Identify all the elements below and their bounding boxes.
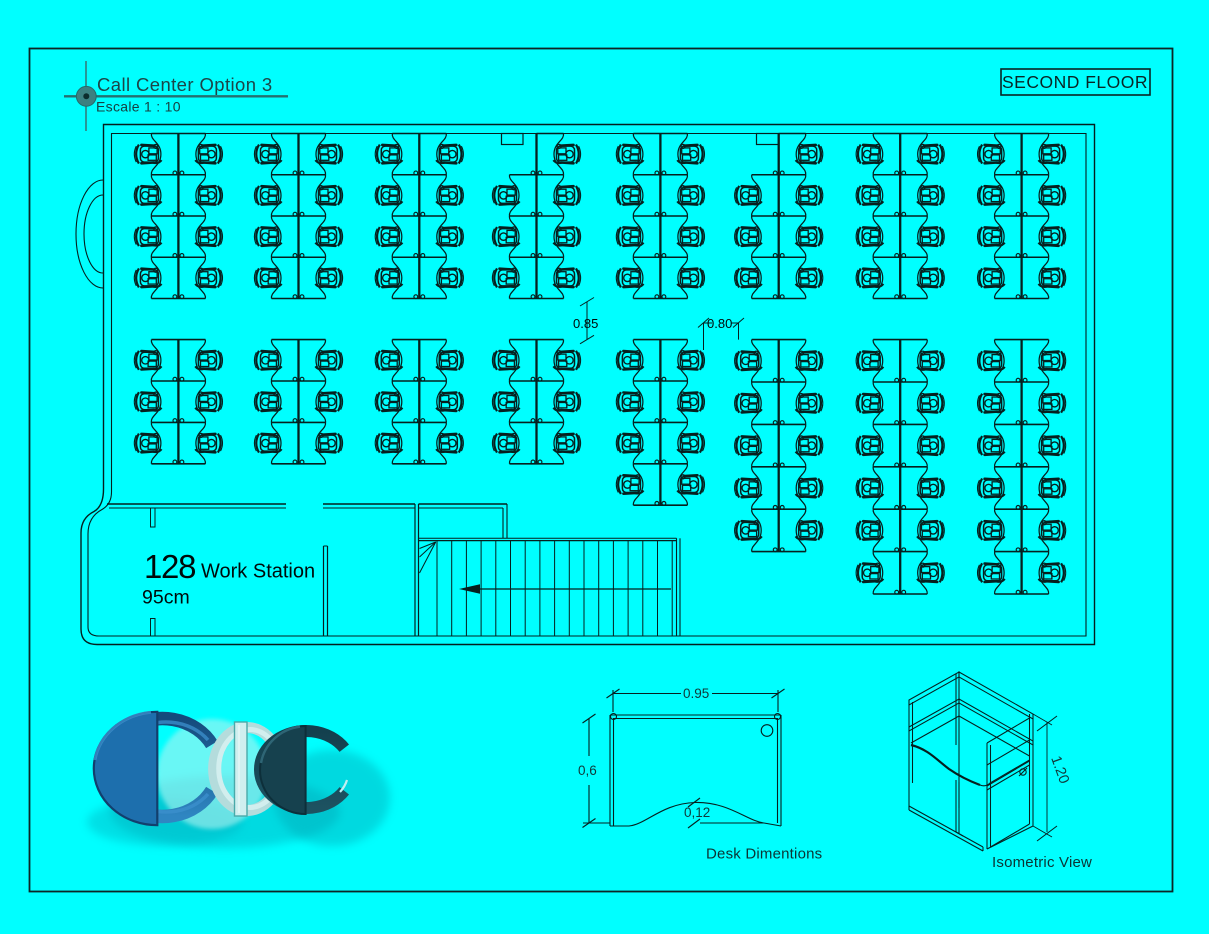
svg-text:Escale 1 : 10: Escale 1 : 10 xyxy=(96,99,181,115)
svg-text:1.20: 1.20 xyxy=(1047,754,1072,786)
svg-text:Work Station: Work Station xyxy=(201,561,315,583)
svg-text:128: 128 xyxy=(144,548,195,585)
svg-text:95cm: 95cm xyxy=(142,587,190,609)
svg-text:SECOND FLOOR: SECOND FLOOR xyxy=(1002,72,1148,92)
svg-text:0,6: 0,6 xyxy=(578,763,597,778)
svg-text:0.95: 0.95 xyxy=(683,686,709,701)
svg-text:Desk Dimentions: Desk Dimentions xyxy=(706,846,822,863)
svg-text:0,12: 0,12 xyxy=(684,805,710,820)
svg-text:Isometric View: Isometric View xyxy=(992,854,1092,871)
svg-text:0.80: 0.80 xyxy=(707,316,732,331)
svg-text:Call Center Option 3: Call Center Option 3 xyxy=(97,74,273,95)
svg-text:0.85: 0.85 xyxy=(573,316,598,331)
